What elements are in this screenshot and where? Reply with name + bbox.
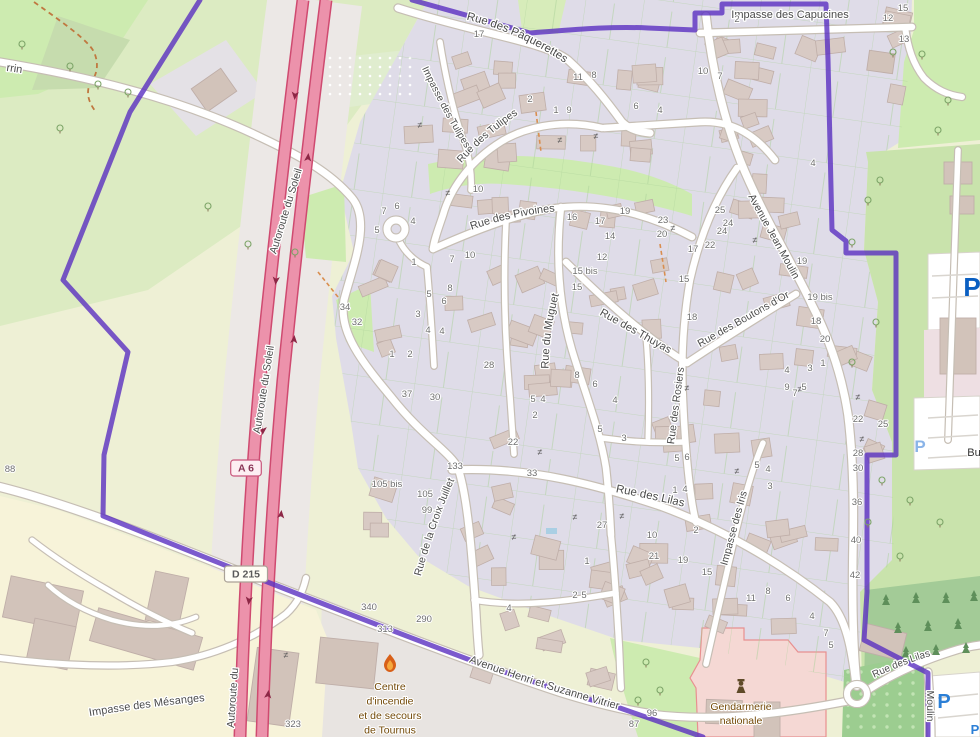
house-number: 13: [899, 34, 910, 45]
house-number: 15: [679, 274, 690, 285]
house-number: 24: [723, 218, 734, 229]
house-number: 1: [411, 257, 416, 268]
house-number: 9: [784, 382, 789, 393]
house-number: 10: [465, 250, 476, 261]
house-number: 4: [540, 394, 545, 405]
house-number: 1: [553, 105, 558, 116]
poi-label: et de secours: [358, 710, 421, 722]
house-number: 10: [698, 66, 709, 77]
house-number: 4: [410, 216, 415, 227]
building: [713, 272, 734, 293]
house-number: 1: [672, 485, 677, 496]
parking-icon: P: [937, 691, 950, 713]
house-number: 5: [426, 289, 431, 300]
house-number: 18: [687, 312, 698, 323]
gate-icon: ≠: [573, 512, 578, 522]
gate-icon: ≠: [620, 511, 625, 521]
map-viewport[interactable]: ≠≠≠≠≠≠≠≠≠≠≠≠≠≠≠≠Rue des PâquerettesImpas…: [0, 0, 980, 737]
house-number: 8: [574, 370, 579, 381]
house-number: 17: [595, 216, 606, 227]
house-number: 2: [407, 349, 412, 360]
building: [703, 390, 720, 407]
building: [370, 523, 388, 537]
building: [632, 64, 657, 83]
house-number: 5: [374, 225, 379, 236]
house-number: 4: [612, 395, 617, 406]
gate-icon: ≠: [594, 131, 599, 141]
street-label: Impasse des Capucines: [731, 9, 849, 21]
house-number: 9: [566, 105, 571, 116]
house-number: 11: [573, 72, 583, 83]
building: [815, 37, 845, 55]
house-number: 323: [285, 719, 301, 730]
building: [766, 519, 790, 538]
poi-label: Gendarmerie: [710, 701, 771, 713]
house-number: 17: [474, 29, 485, 40]
poi-label: nationale: [720, 715, 763, 727]
gate-icon: ≠: [685, 383, 690, 393]
gate-icon: ≠: [860, 434, 865, 444]
building: [498, 73, 515, 88]
house-number: 12: [883, 13, 894, 24]
gate-icon: ≠: [735, 466, 740, 476]
house-number: 4: [506, 603, 511, 614]
house-number: 4: [784, 365, 789, 376]
building: [940, 318, 976, 374]
house-number: 8: [591, 70, 596, 81]
house-number: 1: [389, 349, 394, 360]
house-number: 3: [415, 309, 420, 320]
house-number: 7: [381, 206, 386, 217]
route-badge-label: A 6: [238, 463, 254, 475]
house-number: 25: [878, 419, 889, 430]
house-number: 10: [473, 184, 484, 195]
building: [616, 70, 632, 90]
house-number: 15: [702, 567, 713, 578]
house-number: 25: [715, 205, 726, 216]
house-number: 18: [811, 316, 822, 327]
house-number: 19: [620, 206, 631, 217]
house-number: 19: [678, 555, 689, 566]
house-number: 5: [597, 424, 602, 435]
house-number: 6: [592, 379, 597, 390]
building: [735, 61, 760, 79]
house-number: 7: [823, 628, 828, 639]
house-number: 15: [898, 3, 909, 14]
house-number: 32: [352, 317, 363, 328]
house-number: 96: [647, 708, 658, 719]
house-number: 8: [447, 283, 452, 294]
house-number: 5: [581, 590, 586, 601]
house-number: 133: [447, 461, 463, 472]
house-number: 4: [809, 611, 814, 622]
house-number: 30: [430, 392, 441, 403]
house-number: 4: [657, 105, 662, 116]
house-number: 2: [734, 14, 739, 25]
house-number: 5: [754, 460, 759, 471]
route-badge-label: D 215: [232, 569, 260, 581]
house-number: 2: [693, 525, 698, 536]
house-number: 7: [717, 71, 722, 82]
house-number: 27: [597, 520, 608, 531]
gate-icon: ≠: [418, 120, 423, 130]
house-number: 2: [527, 94, 532, 105]
house-number: 15: [572, 282, 583, 293]
building: [445, 296, 463, 311]
gate-icon: ≠: [538, 447, 543, 457]
house-number: 37: [402, 389, 413, 400]
house-number: 105 bis: [372, 479, 403, 490]
road-mid-ns: [646, 338, 649, 438]
house-number: 340: [361, 602, 377, 613]
building: [550, 369, 571, 387]
house-number: 3: [767, 481, 772, 492]
house-number: 7: [449, 254, 454, 265]
house-number: 6: [394, 201, 399, 212]
house-number: 22: [705, 240, 716, 251]
house-number: 2: [532, 410, 537, 421]
house-number: 4: [425, 325, 430, 336]
gate-icon: ≠: [446, 188, 451, 198]
house-number: 4: [810, 158, 815, 169]
poi-label: Centre: [374, 681, 406, 693]
building: [719, 344, 738, 361]
house-number: 1: [584, 556, 589, 567]
street-label: Moulin: [924, 691, 936, 722]
parking-icon: P: [963, 272, 980, 302]
building: [759, 353, 783, 369]
house-number: 4: [439, 326, 444, 337]
gate-icon: ≠: [558, 135, 563, 145]
building: [491, 568, 506, 586]
house-number: 3: [807, 363, 812, 374]
house-number: 21: [649, 551, 660, 562]
building: [887, 84, 906, 105]
house-number: 5: [801, 382, 806, 393]
house-number: 20: [657, 229, 668, 240]
house-number: 5: [674, 453, 679, 464]
house-number: 16: [567, 212, 578, 223]
house-number: 313: [377, 624, 393, 635]
gate-icon: ≠: [856, 392, 861, 402]
house-number: 290: [416, 614, 432, 625]
building: [316, 637, 378, 689]
building: [714, 433, 740, 453]
house-number: 36: [852, 497, 863, 508]
poi-label: de Tournus: [364, 725, 416, 737]
house-number: 12: [597, 252, 608, 263]
house-number: 14: [605, 231, 616, 242]
partial-label: Bu: [967, 447, 980, 459]
building: [815, 538, 838, 552]
parking-icon: P: [971, 722, 980, 737]
house-number: 20: [820, 334, 831, 345]
house-number: 88: [5, 464, 16, 475]
building: [630, 148, 651, 163]
house-number: 105: [417, 489, 433, 500]
house-number: 28: [853, 448, 864, 459]
house-number: 6: [785, 593, 790, 604]
house-number: 3: [621, 433, 626, 444]
map-canvas[interactable]: ≠≠≠≠≠≠≠≠≠≠≠≠≠≠≠≠Rue des PâquerettesImpas…: [0, 0, 980, 737]
house-number: 11: [746, 593, 756, 604]
parking-icon: P: [914, 437, 925, 456]
house-number: 15 bis: [572, 266, 598, 277]
house-number: 6: [633, 101, 638, 112]
house-number: 30: [853, 463, 864, 474]
house-number: 6: [684, 452, 689, 463]
house-number: 1: [820, 358, 825, 369]
house-number: 99: [422, 505, 433, 516]
house-number: 40: [851, 535, 862, 546]
street-label: rrin: [6, 62, 23, 76]
gate-icon: ≠: [284, 650, 289, 660]
gate-icon: ≠: [512, 532, 517, 542]
house-number: 5: [828, 640, 833, 651]
building: [695, 483, 713, 499]
house-number: 19 bis: [807, 292, 833, 303]
house-number: 5: [530, 394, 535, 405]
house-number: 28: [484, 360, 495, 371]
house-number: 22: [853, 414, 864, 425]
building: [650, 258, 669, 273]
house-number: 23: [658, 215, 669, 226]
house-number: 8: [765, 586, 770, 597]
house-number: 42: [850, 570, 861, 581]
house-number: 34: [340, 302, 351, 313]
house-number: 19: [797, 256, 808, 267]
house-number: 17: [688, 244, 699, 255]
gate-icon: ≠: [753, 235, 758, 245]
house-number: 33: [527, 468, 538, 479]
building: [771, 618, 796, 634]
house-number: 6: [441, 296, 446, 307]
house-number: 4: [682, 484, 687, 495]
house-number: 4: [765, 464, 770, 475]
house-number: 2: [572, 590, 577, 601]
house-number: 87: [629, 719, 640, 730]
house-number: 7: [792, 388, 797, 399]
house-number: 10: [647, 530, 658, 541]
gate-icon: ≠: [671, 223, 676, 233]
house-number: 22: [508, 437, 519, 448]
poi-label: d'incendie: [367, 696, 414, 708]
